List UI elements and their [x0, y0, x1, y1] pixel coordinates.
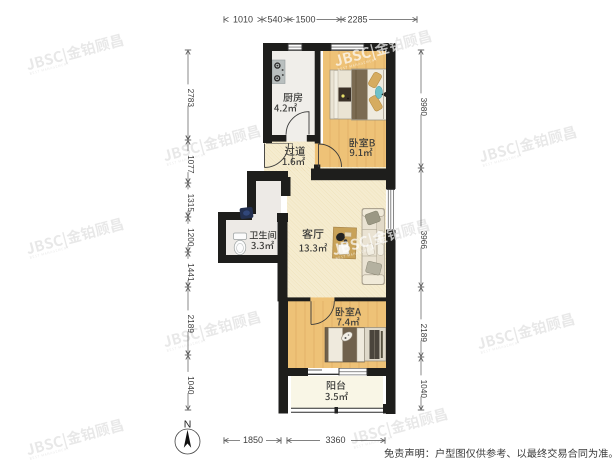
svg-text:2285: 2285 [347, 14, 367, 24]
svg-text:3966: 3966 [419, 231, 429, 250]
svg-text:1040: 1040 [419, 380, 429, 399]
svg-text:1077: 1077 [186, 155, 196, 174]
svg-text:1850: 1850 [243, 435, 263, 445]
svg-text:1500: 1500 [295, 14, 315, 24]
svg-text:1010: 1010 [233, 14, 253, 24]
svg-text:1200: 1200 [186, 228, 196, 247]
svg-text:3360: 3360 [325, 435, 345, 445]
svg-text:1441: 1441 [186, 263, 196, 282]
svg-text:3980: 3980 [419, 98, 429, 117]
svg-text:2189: 2189 [419, 324, 429, 343]
svg-text:540: 540 [267, 14, 282, 24]
svg-text:1040: 1040 [186, 376, 196, 395]
svg-text:2189: 2189 [186, 315, 196, 334]
svg-text:1315: 1315 [186, 194, 196, 213]
svg-text:2783: 2783 [186, 89, 196, 108]
svg-text:N: N [184, 419, 192, 431]
